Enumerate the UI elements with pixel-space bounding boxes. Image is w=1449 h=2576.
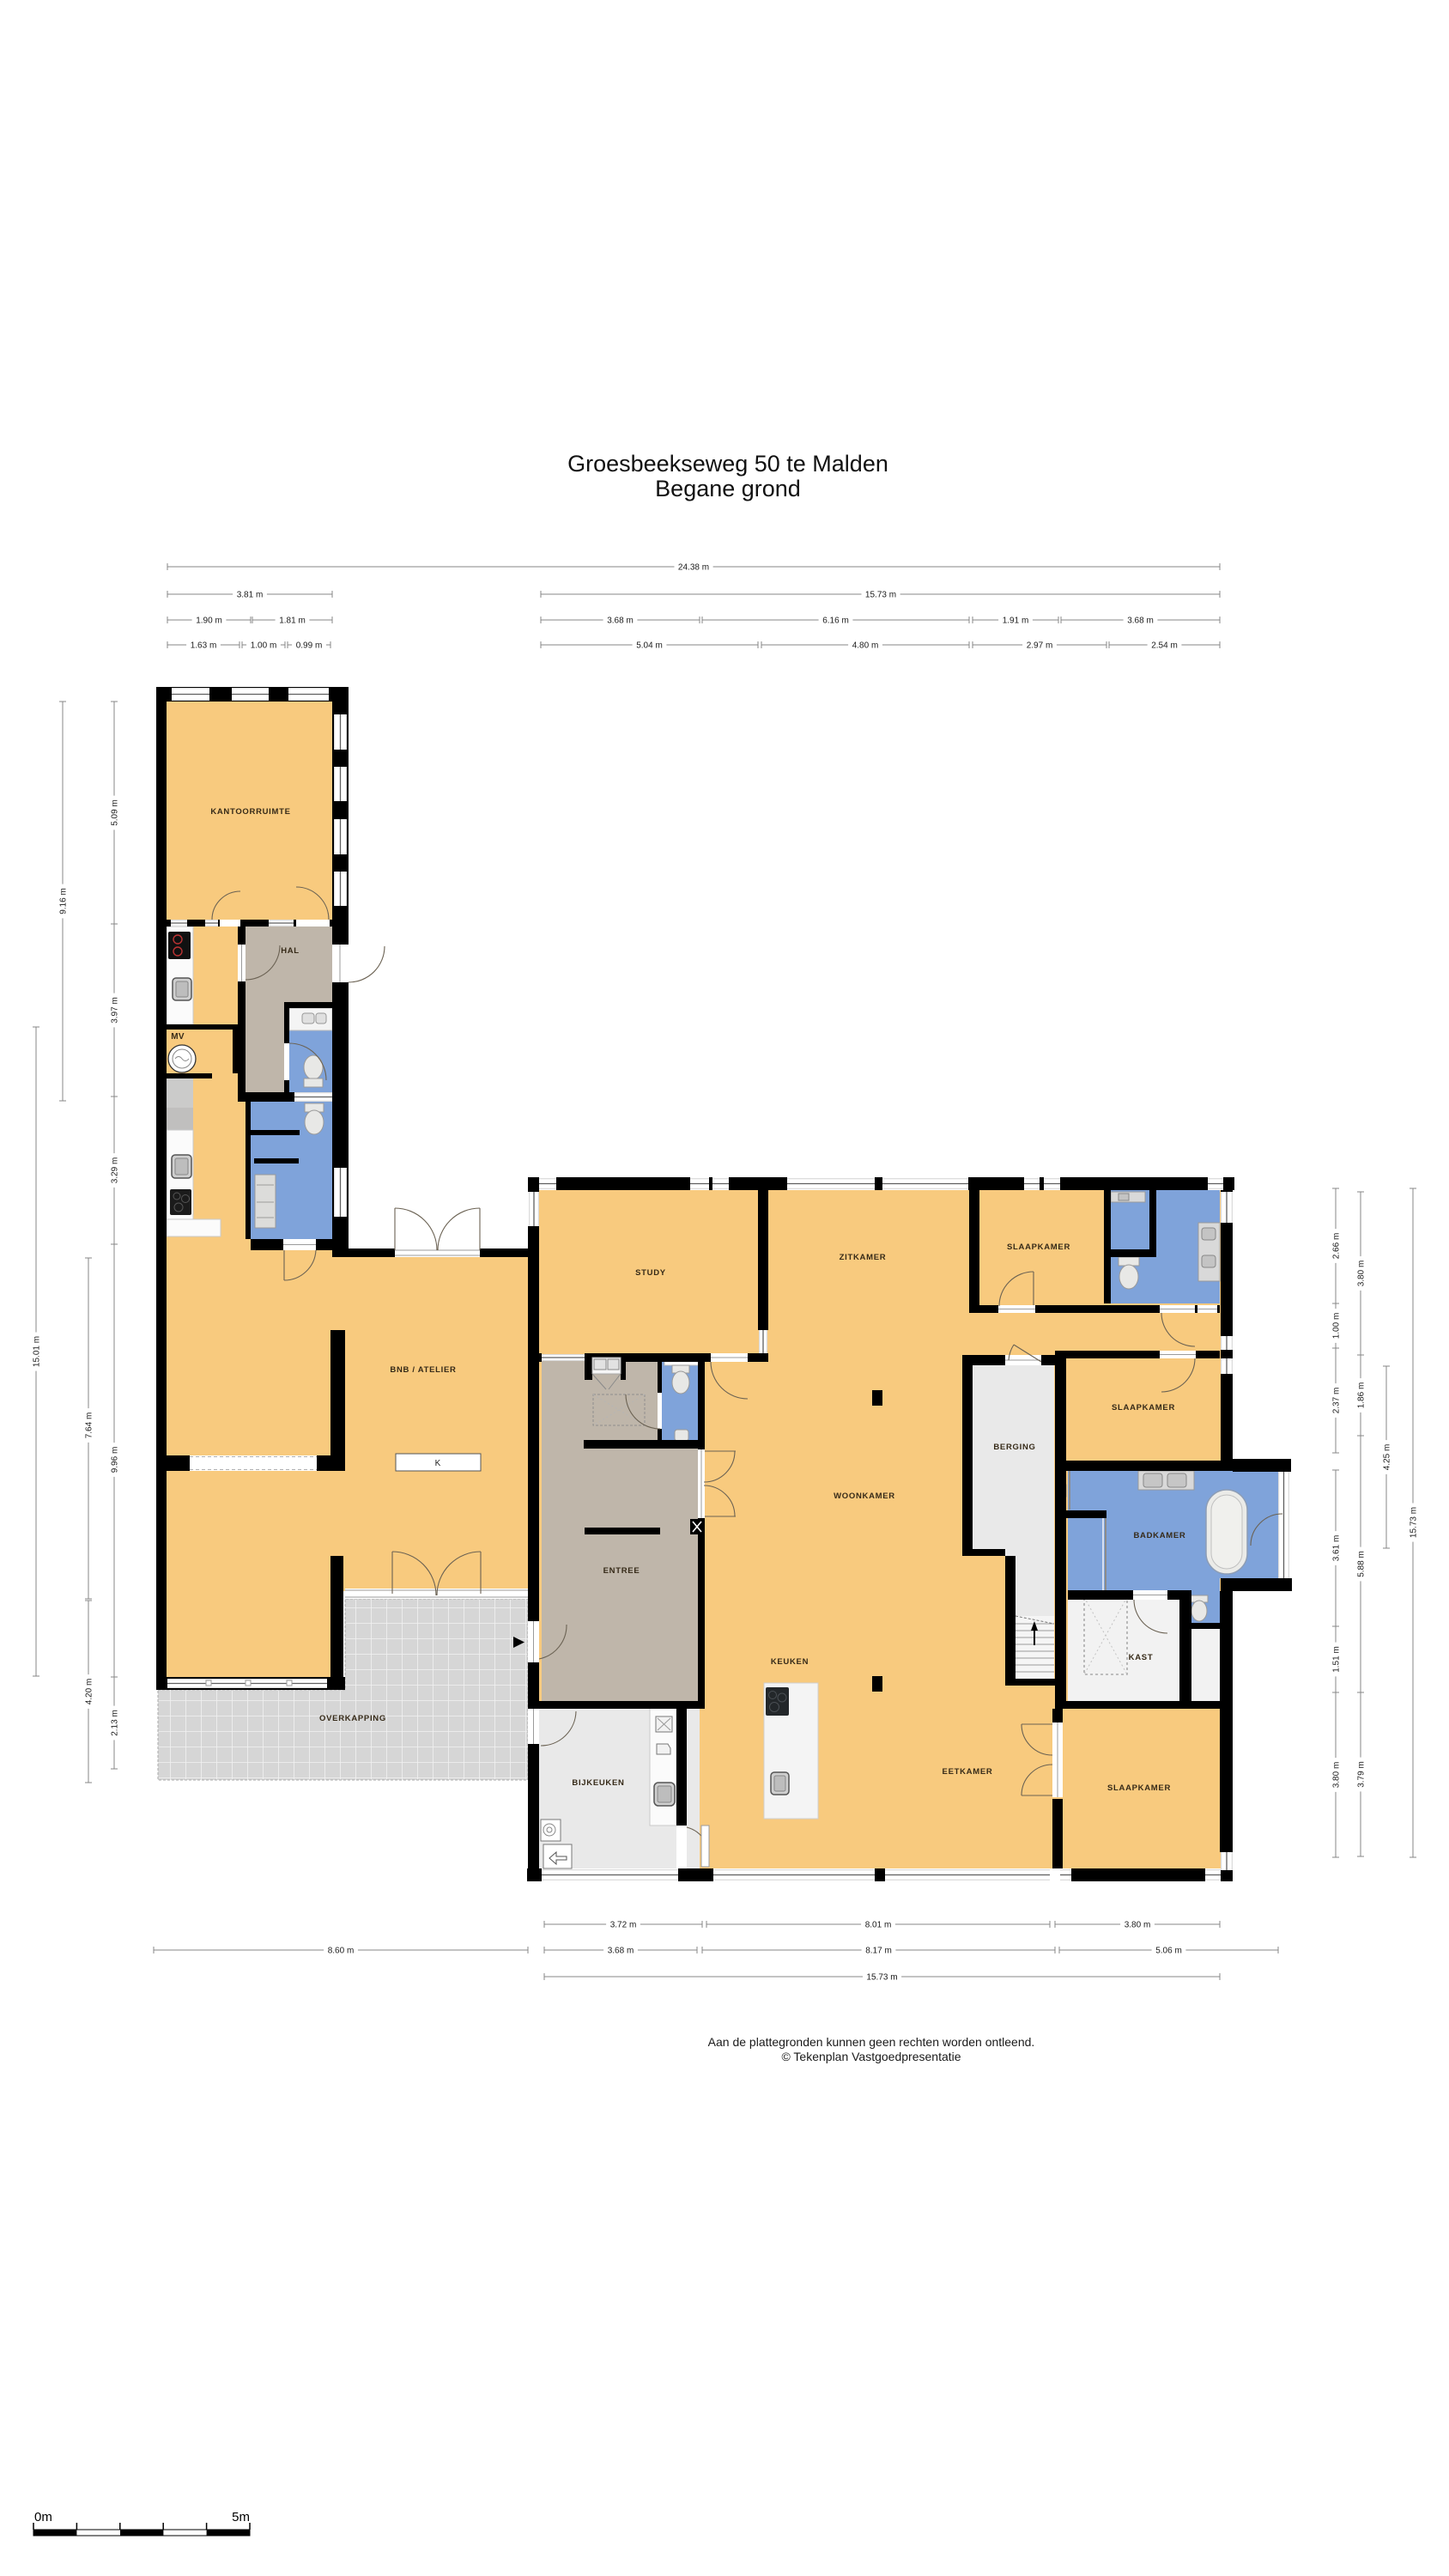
svg-text:SLAAPKAMER: SLAAPKAMER	[1107, 1783, 1171, 1793]
svg-text:SLAAPKAMER: SLAAPKAMER	[1112, 1403, 1175, 1413]
svg-text:4.25 m: 4.25 m	[1383, 1444, 1392, 1471]
svg-text:15.73 m: 15.73 m	[865, 591, 896, 600]
svg-text:WOONKAMER: WOONKAMER	[834, 1492, 895, 1501]
svg-text:3.97 m: 3.97 m	[111, 997, 120, 1024]
svg-text:8.60 m: 8.60 m	[328, 1947, 355, 1956]
svg-text:3.80 m: 3.80 m	[1332, 1762, 1342, 1789]
svg-text:STUDY: STUDY	[635, 1268, 666, 1278]
svg-text:2.13 m: 2.13 m	[111, 1710, 120, 1736]
svg-text:K: K	[435, 1459, 441, 1468]
svg-text:1.90 m: 1.90 m	[196, 617, 222, 626]
svg-text:5m: 5m	[232, 2510, 250, 2524]
svg-text:1.86 m: 1.86 m	[1357, 1382, 1367, 1409]
svg-text:KANTOORRUIMTE: KANTOORRUIMTE	[210, 807, 290, 817]
svg-text:3.80 m: 3.80 m	[1125, 1921, 1151, 1930]
svg-text:BERGING: BERGING	[993, 1443, 1035, 1452]
svg-text:BADKAMER: BADKAMER	[1133, 1531, 1185, 1540]
svg-text:Begane grond: Begane grond	[655, 476, 801, 501]
svg-text:KAST: KAST	[1129, 1653, 1154, 1662]
svg-text:5.88 m: 5.88 m	[1357, 1551, 1367, 1577]
svg-text:1.00 m: 1.00 m	[251, 641, 277, 651]
svg-text:0.99 m: 0.99 m	[296, 641, 323, 651]
svg-text:5.06 m: 5.06 m	[1155, 1947, 1182, 1956]
svg-text:Groesbeekseweg 50 te Malden: Groesbeekseweg 50 te Malden	[567, 451, 888, 477]
svg-text:4.20 m: 4.20 m	[85, 1679, 94, 1705]
svg-text:1.81 m: 1.81 m	[279, 617, 306, 626]
svg-text:3.80 m: 3.80 m	[1357, 1261, 1367, 1287]
svg-text:2.97 m: 2.97 m	[1027, 641, 1053, 651]
svg-text:Aan de plattegronden kunnen ge: Aan de plattegronden kunnen geen rechten…	[708, 2035, 1035, 2049]
svg-text:3.79 m: 3.79 m	[1357, 1761, 1367, 1788]
svg-text:7.64 m: 7.64 m	[85, 1413, 94, 1439]
svg-text:HAL: HAL	[281, 946, 300, 956]
svg-text:2.37 m: 2.37 m	[1332, 1388, 1342, 1414]
svg-text:3.68 m: 3.68 m	[608, 1947, 634, 1956]
svg-text:15.01 m: 15.01 m	[33, 1336, 42, 1367]
svg-text:5.09 m: 5.09 m	[111, 799, 120, 826]
svg-text:8.17 m: 8.17 m	[865, 1947, 892, 1956]
svg-text:3.68 m: 3.68 m	[1127, 617, 1154, 626]
svg-text:3.61 m: 3.61 m	[1332, 1535, 1342, 1562]
svg-text:ZITKAMER: ZITKAMER	[840, 1253, 887, 1262]
svg-text:KEUKEN: KEUKEN	[771, 1657, 809, 1667]
svg-text:2.54 m: 2.54 m	[1151, 641, 1178, 651]
svg-text:© Tekenplan Vastgoedpresentati: © Tekenplan Vastgoedpresentatie	[781, 2050, 961, 2063]
svg-text:1.91 m: 1.91 m	[1003, 617, 1029, 626]
svg-text:MV: MV	[171, 1032, 185, 1042]
svg-text:1.00 m: 1.00 m	[1332, 1313, 1342, 1340]
svg-text:BNB / ATELIER: BNB / ATELIER	[390, 1365, 456, 1375]
svg-text:ENTREE: ENTREE	[603, 1566, 640, 1576]
svg-text:3.81 m: 3.81 m	[237, 591, 264, 600]
svg-text:3.72 m: 3.72 m	[610, 1921, 637, 1930]
svg-text:0m: 0m	[34, 2510, 52, 2524]
svg-text:OVERKAPPING: OVERKAPPING	[319, 1714, 386, 1723]
svg-text:EETKAMER: EETKAMER	[943, 1767, 993, 1777]
svg-text:SLAAPKAMER: SLAAPKAMER	[1007, 1242, 1070, 1252]
svg-text:BIJKEUKEN: BIJKEUKEN	[572, 1778, 624, 1788]
svg-text:9.16 m: 9.16 m	[59, 888, 69, 914]
svg-text:6.16 m: 6.16 m	[822, 617, 849, 626]
svg-text:3.29 m: 3.29 m	[111, 1157, 120, 1184]
svg-text:2.66 m: 2.66 m	[1332, 1233, 1342, 1260]
svg-text:1.51 m: 1.51 m	[1332, 1646, 1342, 1673]
svg-text:1.63 m: 1.63 m	[191, 641, 217, 651]
svg-text:3.68 m: 3.68 m	[607, 617, 634, 626]
svg-text:15.73 m: 15.73 m	[1410, 1507, 1419, 1538]
svg-text:8.01 m: 8.01 m	[865, 1921, 892, 1930]
svg-text:15.73 m: 15.73 m	[866, 1973, 897, 1983]
svg-text:5.04 m: 5.04 m	[636, 641, 663, 651]
svg-text:9.96 m: 9.96 m	[111, 1447, 120, 1473]
svg-text:4.80 m: 4.80 m	[852, 641, 879, 651]
svg-text:24.38 m: 24.38 m	[678, 563, 709, 573]
